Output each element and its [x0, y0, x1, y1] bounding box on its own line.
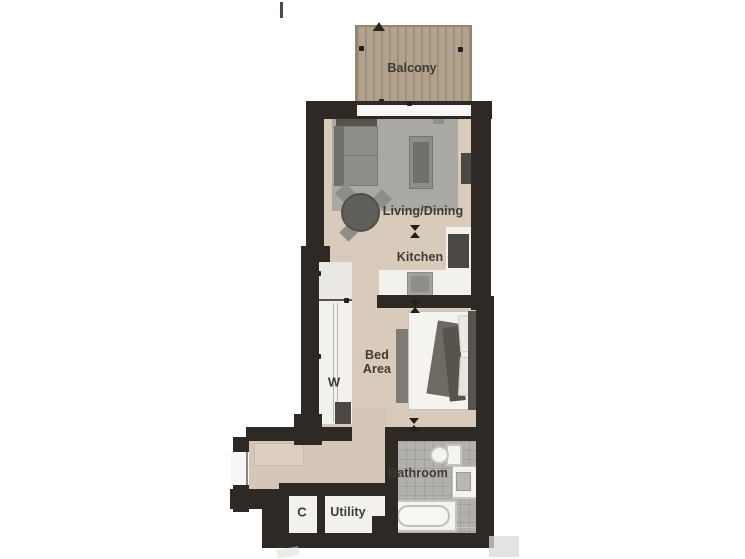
living-dining-label: Living/Dining: [383, 204, 463, 218]
wall-segment: [476, 296, 494, 548]
door-marker: [409, 418, 419, 431]
dining-table-top: [413, 142, 429, 183]
utility-label: Utility: [330, 505, 365, 519]
corridor-opening-floor: [350, 408, 387, 445]
balcony-dot-marker: [359, 46, 364, 51]
wardrobe-label: W: [328, 376, 340, 391]
adjacent-unit-ghost: [276, 546, 299, 559]
wall-segment: [385, 427, 480, 441]
entrance-door-leaf: [246, 452, 248, 485]
hallway-console: [254, 443, 304, 466]
wall-dot-marker: [344, 298, 349, 303]
balcony-triangle-marker: [373, 22, 385, 31]
sofa-cushion-line: [344, 155, 378, 156]
toilet-bowl: [430, 446, 449, 464]
wall-segment: [377, 295, 480, 308]
bathtub-inner: [397, 505, 450, 527]
fridge: [448, 234, 469, 268]
wall-segment: [246, 427, 352, 441]
balcony-dot-marker: [458, 47, 463, 52]
bed-area-label: Bed Area: [354, 348, 400, 376]
wall-segment: [471, 101, 491, 310]
basin: [456, 472, 471, 491]
window-dot-marker: [407, 101, 412, 106]
kitchen-label: Kitchen: [397, 250, 444, 264]
wardrobe-door-line: [333, 303, 334, 422]
door-marker: [410, 225, 420, 238]
wall-segment: [279, 489, 289, 536]
adjacent-unit-ghost: [489, 536, 519, 557]
living-window: [357, 105, 471, 116]
wall-tick-mark: [280, 2, 283, 18]
wardrobe-shelf-unit: [335, 402, 351, 424]
wall-segment: [301, 246, 319, 418]
bathroom-label: Bathroom: [388, 466, 448, 480]
balcony-label: Balcony: [387, 61, 436, 75]
round-table: [341, 193, 380, 232]
wall-segment: [279, 483, 397, 496]
wall-segment: [317, 489, 325, 536]
wall-segment: [385, 427, 398, 537]
floor-plan: Balcony Living/Dining Kitchen Bed Area W…: [0, 0, 745, 559]
wardrobe-top-cupboard: [319, 262, 352, 301]
hob-inner: [411, 276, 429, 292]
cupboard-label: C: [297, 506, 307, 521]
sofa-back: [334, 126, 344, 186]
wall-segment: [306, 101, 324, 259]
door-marker: [410, 300, 420, 313]
wall-segment: [372, 516, 386, 536]
